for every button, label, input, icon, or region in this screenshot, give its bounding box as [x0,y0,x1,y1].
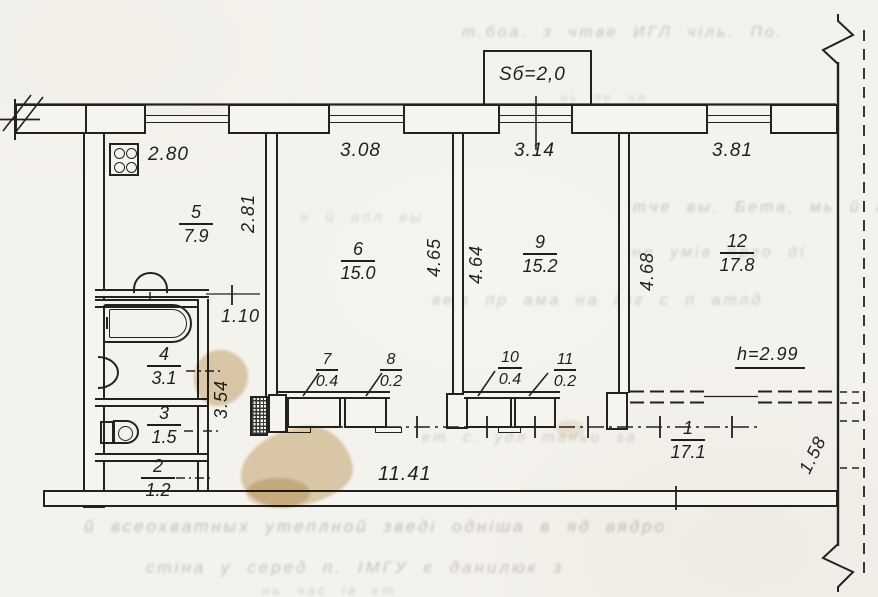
room-label-3: 3 1.5 [129,404,199,448]
room-area: 1.5 [129,427,199,449]
room-area: 0.2 [537,372,593,391]
room-area: 7.9 [161,226,231,248]
room-number: 8 [380,352,402,371]
room-label-2: 2 1.2 [123,457,193,501]
ceiling-height-note: h=2.99 [735,344,805,369]
room-label-9: 9 15.2 [505,233,575,277]
dim-room6-height: 4.65 [424,238,445,277]
room-area: 0.4 [482,370,538,389]
room-label-1: 1 17.1 [653,419,723,463]
room-area: 17.8 [702,255,772,277]
room-label-5: 5 7.9 [161,203,231,247]
room-label-4: 4 3.1 [129,345,199,389]
dim-kitchen-height: 2.81 [238,194,259,233]
closet-label-11: 11 0.2 [537,351,593,391]
drawing-linework [0,0,878,597]
dim-corridor-width: 1.10 [221,306,260,327]
room-label-6: 6 15.0 [323,240,393,284]
dim-room12-width: 3.81 [712,140,753,162]
room-number: 3 [147,404,181,426]
floor-plan-scan: т.боа. з чтве ИГЛ чіль. По. нь пе чл н й… [0,0,878,597]
room-number: 4 [147,345,181,367]
room-number: 10 [498,350,522,369]
room-area: 15.0 [323,263,393,285]
dim-room9-width: 3.14 [514,140,555,162]
room-area: 15.2 [505,256,575,278]
room-number: 9 [523,233,557,255]
stain [556,420,584,438]
closet-label-7: 7 0.4 [299,351,355,391]
dim-room6-width: 3.08 [340,140,381,162]
room-number: 5 [179,203,213,225]
room-area: 0.4 [299,372,355,391]
dim-room12-height: 4.68 [637,252,658,291]
room-area: 3.1 [129,368,199,390]
room-area: 0.2 [363,372,419,391]
dim-room9-height: 4.64 [466,245,487,284]
stain [246,478,310,508]
room-number: 2 [141,457,175,479]
room-area: 17.1 [653,442,723,464]
room-number: 6 [341,240,375,262]
room-number: 7 [316,352,338,371]
room-number: 1 [671,419,705,441]
room-area: 1.2 [123,480,193,502]
closet-label-10: 10 0.4 [482,349,538,389]
room-number: 12 [720,232,754,254]
closet-label-8: 8 0.2 [363,351,419,391]
room-label-12: 12 17.8 [702,232,772,276]
dim-kitchen-width: 2.80 [148,144,189,166]
room-number: 11 [554,352,577,371]
dim-total-width: 11.41 [378,463,432,486]
